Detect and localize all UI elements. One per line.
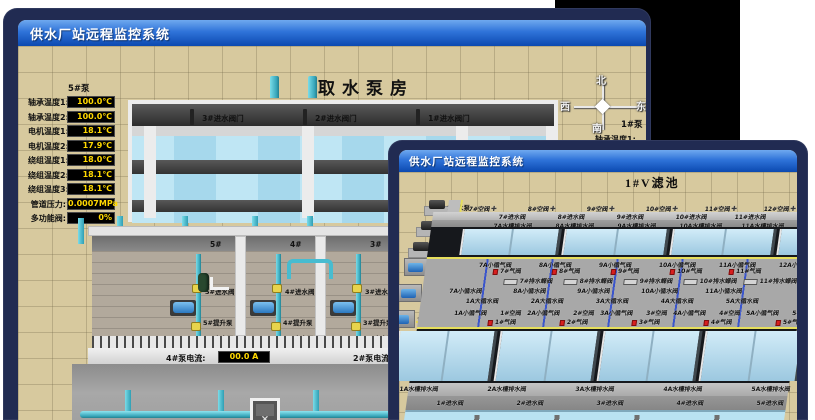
pipe-loop [287,259,333,279]
row-air-valves-bottom: 1#气阀2#气阀3#气阀4#气阀5#气阀 [417,317,797,325]
valve-text: 10#排水蝶阀 [699,278,737,285]
valve-label[interactable]: 1A水槽排水阀 [399,384,439,393]
pipe-vertical [78,218,84,244]
pipe-stub [218,390,224,412]
row-trough-drain-valves-bottom: 1A水槽排水阀2A水槽排水阀3A水槽排水阀4A水槽排水阀5A水槽排水阀 [408,384,789,392]
inlet-channel [403,410,786,420]
compass-east: 东 [636,98,646,113]
filter-cells-top [427,227,797,257]
led-value: 100.0℃ [67,111,115,123]
red-valve-icon [703,320,709,326]
sensor-label: 电机温度1: [28,126,66,137]
valve-text: 11#气阀 [735,268,761,275]
valve-text: 5#空阀 [792,308,797,317]
valve-label[interactable]: 4A大循水阀 [660,296,694,305]
valve-text: 3#气阀 [638,319,660,326]
filter-cell [494,331,601,381]
filter-cells-bottom [409,329,797,383]
valve-label[interactable]: 8#气阀 [551,266,580,275]
valve-label[interactable]: 3#进水阀 [596,398,624,407]
pump-bay: 4# 4#进水阀 4#提升泵 4#出水阀 [250,226,322,346]
row-air-valves-top: 7#气阀8#气阀9#气阀10#气阀11#气阀 [425,266,797,274]
valve-label[interactable]: 1#进水阀 [436,398,464,407]
current-label: 4#泵电流: [166,353,205,364]
row-inlet-valves-bottom: 1#进水阀2#进水阀3#进水阀4#进水阀5#进水阀 [406,398,787,406]
scene-title: 1#V滤池 [625,174,680,191]
equipment-box-icon [743,279,758,285]
valve-label[interactable]: 2#气阀 [559,317,588,326]
valve-text: 1#空阀 [500,308,522,317]
pump4-current: 4#泵电流: 00.0 A [166,351,286,363]
equipment-box-icon [563,279,578,285]
valve-text: 9#排水蝶阀 [639,278,673,285]
equipment-box-icon [683,279,698,285]
motor-icon [413,242,429,251]
sensor-row: 电机温度1: 18.1℃ [28,125,138,137]
valve-label[interactable]: 8#排水蝶阀 [563,276,613,285]
current-label: 2#泵电流: [353,353,392,364]
back-window-titlebar[interactable]: 供水厂站远程监控系统 [18,20,646,46]
valve-label[interactable]: 11A小循水阀 [705,286,743,295]
row-inlet-valves-top: 7#进水阀8#进水阀9#进水阀10#进水阀11#进水阀 [432,212,797,220]
tank-icon[interactable] [198,273,209,292]
sensor-row: 轴承温度2: 100.0℃ [28,111,138,123]
valve-text: 11#排水蝶阀 [759,278,797,285]
pipe-pillar [308,76,317,98]
red-valve-icon [775,320,781,326]
valve-text: 8#气阀 [558,268,580,275]
valve-text: 9#气阀 [617,268,639,275]
valve-text: 4#空阀 [719,308,741,317]
led-value: 0% [67,212,115,224]
valve-text: 4#气阀 [710,319,732,326]
compass-south: 南 [592,120,602,135]
intake-valve[interactable]: 3#进水阀门 [190,106,244,125]
compass-west: 西 [560,98,570,113]
pipe-elbow [210,277,229,290]
valve-text: 1#气阀 [494,319,516,326]
led-value: 0.0007MPa [67,198,115,210]
valve-label[interactable]: 1A大循水阀 [465,296,499,305]
valve-label[interactable]: 2A小循气阀2#空阀 [527,308,561,317]
valve-label[interactable]: 5#进水阀 [756,398,784,407]
pipe-stub [313,390,319,412]
valve-label[interactable]: 10#排水蝶阀 [683,276,738,285]
valve-label[interactable]: 7#气阀 [492,266,521,275]
desktop: 供水厂站远程监控系统 取水泵房 [0,0,815,420]
valve-label[interactable]: 8A小循水阀 [513,286,547,295]
sensor-label: 管道压力: [28,199,66,210]
led-value: 18.1℃ [67,183,115,195]
front-window: 供水厂站远程监控系统 1#V滤池 1#水泵 [399,150,797,420]
equipment-box-icon [503,279,518,285]
sensor-row: 电机温度2: 17.9℃ [28,140,138,152]
valve-text: 2#气阀 [566,319,588,326]
red-valve-icon [729,269,735,275]
valve-text: 3#空阀 [646,308,668,317]
valve-label[interactable]: 3A大循水阀 [595,296,629,305]
valve-label[interactable]: 11#排水蝶阀 [743,276,797,285]
led-value: 100.0℃ [67,96,115,108]
valve-text: 5A小循气阀 [746,310,780,317]
filter-cell [699,331,797,381]
red-valve-icon [493,269,499,275]
valve-label[interactable]: 5A小循气阀5#空阀 [746,308,780,317]
red-valve-icon [670,269,676,275]
pump-label: 5#提升泵 [203,317,232,327]
valve-text: 7#气阀 [499,268,521,275]
valve-label[interactable]: 4A小循气阀4#空阀 [673,308,707,317]
sensor-label: 绕组温度3: [28,184,66,195]
filter-cell [561,229,670,255]
valve-label[interactable]: 9#气阀 [610,266,639,275]
sensor-row: 绕组温度3: 18.1℃ [28,183,138,195]
outlet-main-pipe [80,411,410,418]
sensor-label: 轴承温度2: [28,112,66,123]
front-scene-filter-pool: 1#V滤池 1#水泵 2#水泵 [399,172,797,420]
sensor-label: 轴承温度1: [28,97,66,108]
blower-body-icon [408,263,423,272]
valve-label[interactable]: 9#排水蝶阀 [623,276,673,285]
sensor-row: 管道压力: 0.0007MPa [28,198,138,210]
outlet-valve-icon[interactable] [351,322,361,331]
row-main-circ-water-valves-bottom: 1A大循水阀2A大循水阀3A大循水阀4A大循水阀5A大循水阀 [420,296,797,304]
valve-label[interactable]: 5#气阀 [775,317,797,326]
blower-body-icon [401,289,416,298]
valve-label[interactable]: 5A水槽排水阀 [751,384,791,393]
valve-stem-icon [190,109,194,125]
valve-label[interactable]: 7A小循水阀 [449,286,483,295]
panel-header: 5#泵 [68,82,90,94]
valve-label[interactable]: 9A小循水阀 [577,286,611,295]
bay-number: 5# [210,240,222,249]
valve-text: 5#气阀 [782,319,797,326]
basin-divider [302,126,314,218]
lift-pump-icon[interactable] [170,300,196,316]
valve-stem-icon [416,109,420,125]
valve-text: 3A小循气阀 [600,310,634,317]
sensor-row: 绕组温度2: 18.1℃ [28,169,138,181]
sensor-label: 电机温度2: [28,141,66,152]
led-value: 18.0℃ [67,154,115,166]
pipe-pillar [270,76,279,98]
intake-valve-label: 3#进水阀门 [202,114,244,123]
valve-label[interactable]: 3A水槽排水阀 [575,384,615,393]
valve-label[interactable]: 11#气阀 [728,266,762,275]
intake-valve-label: 1#进水阀门 [428,114,470,123]
pump-body [253,302,274,313]
red-valve-icon [487,320,493,326]
valve-label[interactable]: 4A水槽排水阀 [663,384,703,393]
front-window-title: 供水厂站远程监控系统 [409,154,524,169]
valve-label[interactable]: 2A水槽排水阀 [487,384,527,393]
equipment-box-icon [623,279,638,285]
sensor-label: 绕组温度1: [28,155,66,166]
valve-text: 7#排水蝶阀 [519,278,553,285]
filter-cell [776,229,797,255]
valve-label[interactable]: 4#气阀 [703,317,732,326]
sensor-row: 绕组温度1: 18.0℃ [28,154,138,166]
valve-label[interactable]: 2#进水阀 [516,398,544,407]
current-led: 00.0 A [218,351,270,363]
row-circ-air-and-release-valves-bottom: 1A小循气阀1#空阀2A小循气阀2#空阀3A小循气阀3#空阀4A小循气阀4#空阀… [419,308,797,316]
pump-label: 4#提升泵 [283,317,312,327]
outlet-valve-icon[interactable] [271,322,281,331]
front-window-titlebar[interactable]: 供水厂站远程监控系统 [399,150,797,172]
valve-label[interactable]: 5A大循水阀 [725,296,759,305]
basin-divider [144,126,156,218]
filter-cell [669,229,777,255]
sensor-label: 绕组温度2: [28,170,66,181]
valve-label[interactable]: 10#气阀 [669,266,703,275]
led-value: 17.9℃ [67,140,115,152]
compass-north: 北 [596,72,606,87]
valve-label[interactable]: 10A小循水阀 [641,286,679,295]
red-valve-icon [559,320,565,326]
pump-body [333,302,354,313]
valve-label[interactable]: 2A大循水阀 [530,296,564,305]
lift-pump-icon[interactable] [330,300,356,316]
row-circ-water-valves-top: 7A小循水阀8A小循水阀9A小循水阀10A小循水阀11A小循水阀 [422,286,797,294]
led-value: 18.1℃ [67,125,115,137]
pump-body [173,302,194,313]
red-valve-icon [611,269,617,275]
intake-valve[interactable]: 1#进水阀门 [416,106,470,125]
valve-stem-icon [303,109,307,125]
intake-valve-label: 2#进水阀门 [315,114,357,123]
valve-text: 10#气阀 [676,268,702,275]
bay-number: 3# [370,240,382,249]
filter-pool-grid: 7#空阀✚8#空阀✚9#空阀✚10#空阀✚11#空阀✚12#空阀✚ 7#进水阀8… [401,200,797,420]
valve-text: 1A小循气阀 [454,310,488,317]
valve-text: 4A小循气阀 [673,310,707,317]
blower-body-icon [399,315,409,324]
valve-text: 2A小循气阀 [527,310,561,317]
scene-title: 取水泵房 [318,74,414,99]
panel-header: 1#泵 [621,118,643,130]
gate-panel [256,404,274,416]
sensor-label: 多功能阀: [28,213,66,224]
valve-label[interactable]: 4#进水阀 [676,398,704,407]
lift-pump-icon[interactable] [250,300,276,316]
gate-valve-box[interactable]: ⨯ [250,398,280,420]
led-value: 18.1℃ [67,169,115,181]
valve-label[interactable]: 3#气阀 [631,317,660,326]
valve-text: 8#排水蝶阀 [579,278,613,285]
front-window-frame: 供水厂站远程监控系统 1#V滤池 1#水泵 [388,140,808,420]
back-window-title: 供水厂站远程监控系统 [30,24,170,43]
filter-cell [459,229,562,255]
bay-number: 4# [290,240,302,249]
filter-cell [597,331,703,381]
outlet-valve-icon[interactable] [191,322,201,331]
basin-beam [132,126,554,136]
row-air-release-valves-top: 7#空阀✚8#空阀✚9#空阀✚10#空阀✚11#空阀✚12#空阀✚ [433,204,797,212]
valve-label[interactable]: 1A小循气阀1#空阀 [454,308,488,317]
inlet-valve-label: 4#进水阀 [285,286,314,296]
compass-star-icon [595,99,611,115]
intake-valve[interactable]: 2#进水阀门 [303,106,357,125]
inlet-valve-icon[interactable] [272,284,282,293]
valve-label[interactable]: 7#排水蝶阀 [503,276,553,285]
valve-label[interactable]: 1#气阀 [487,317,516,326]
pipe-stub [125,390,131,412]
filter-cell [399,331,498,381]
inlet-valve-icon[interactable] [352,284,362,293]
row-drain-butterfly-valves-top: 7#排水蝶阀8#排水蝶阀9#排水蝶阀10#排水蝶阀11#排水蝶阀 [423,276,797,284]
red-valve-icon [631,320,637,326]
sensor-row: 轴承温度1: 100.0℃ [28,96,138,108]
valve-text: 2#空阀 [573,308,595,317]
valve-label[interactable]: 3A小循气阀3#空阀 [600,308,634,317]
red-valve-icon [552,269,558,275]
